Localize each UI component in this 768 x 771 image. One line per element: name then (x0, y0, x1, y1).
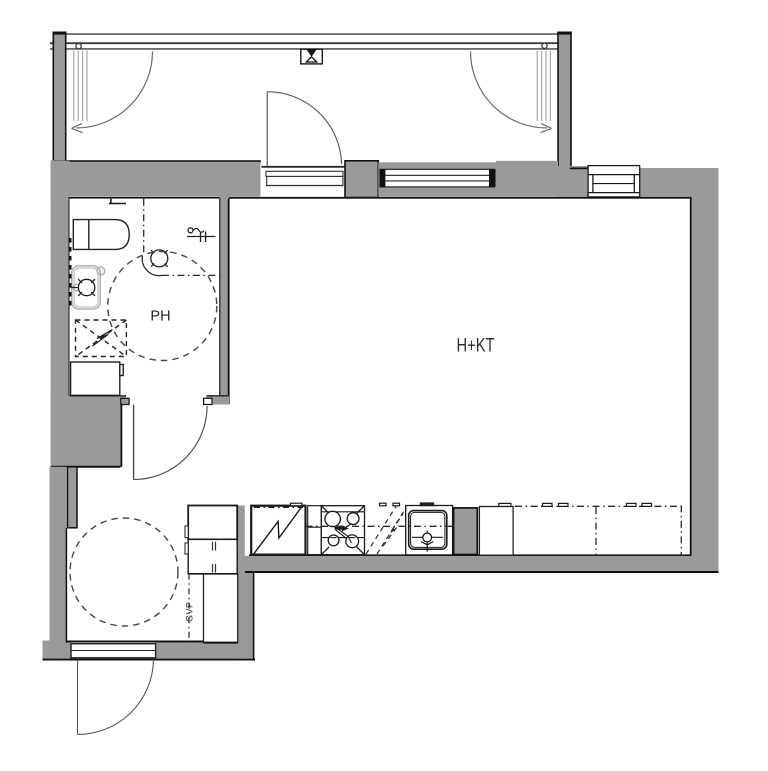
svg-text:H+KT: H+KT (457, 335, 495, 356)
svg-text:PH: PH (150, 309, 170, 325)
svg-text:GVP: GVP (185, 601, 195, 622)
